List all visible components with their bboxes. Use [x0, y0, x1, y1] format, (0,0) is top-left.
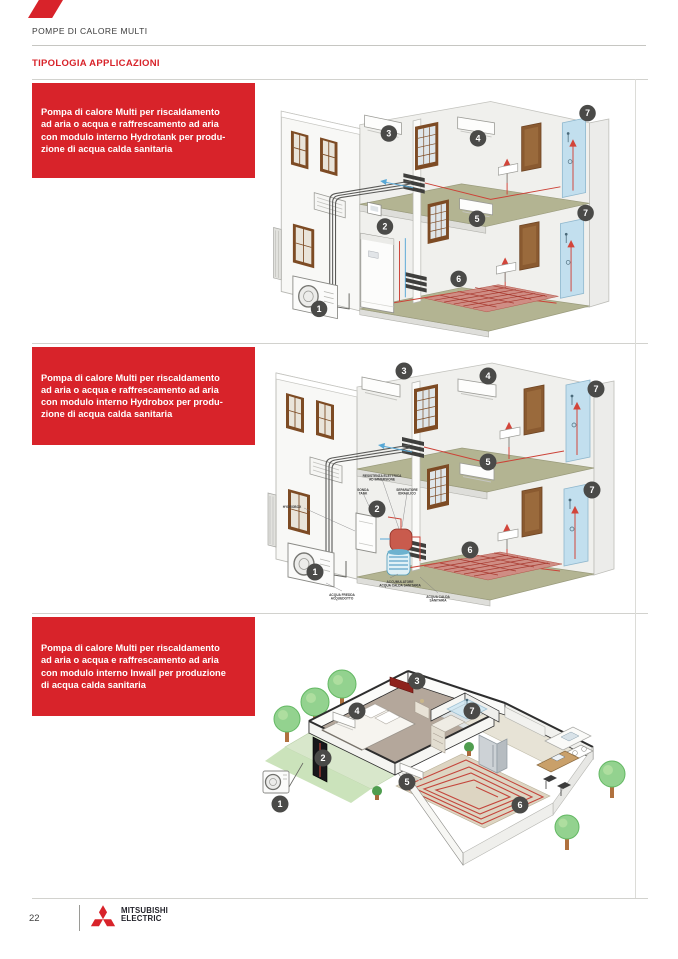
badge-number: 3 [386, 129, 391, 139]
mitsubishi-logo-icon [90, 905, 116, 927]
footer-rule [32, 898, 648, 899]
illustration-label: ACQUA FREDDAACQUEDOTTO [329, 593, 355, 601]
tree [555, 815, 579, 850]
house-illustration-hydrobox: 12345677 RESISTENZA ELETTRICAAD IMMERSIO… [262, 347, 632, 607]
badge-number: 1 [312, 567, 317, 577]
badge-number: 7 [589, 485, 594, 495]
section-title: TIPOLOGIA APPLICAZIONI [32, 58, 160, 69]
catalog-page: POMPE DI CALORE MULTI TIPOLOGIA APPLICAZ… [0, 0, 678, 959]
badge-number: 6 [456, 274, 461, 284]
section-divider [32, 79, 648, 80]
mitsubishi-diamond-mark [28, 0, 63, 18]
description-text: Pompa di calore Multi per riscaldamento … [41, 106, 225, 155]
house-illustration-inwall: 1234567 [255, 641, 650, 886]
hydrobox-unit [356, 513, 376, 553]
illustration-label: ACQUA CALDASANITARIA [426, 595, 450, 603]
badge-number: 3 [401, 366, 406, 376]
badge-number: 6 [467, 545, 472, 555]
badge-number: 7 [593, 384, 598, 394]
illustration-label: SEPARATOREIDRAULICO [396, 488, 418, 496]
badge-number: 7 [583, 208, 588, 218]
badge-number: 5 [475, 214, 480, 224]
section-divider [32, 343, 648, 344]
badge-number: 5 [404, 777, 409, 787]
page-number: 22 [29, 913, 40, 924]
badge-number: 7 [585, 108, 590, 118]
badge-number: 4 [485, 371, 490, 381]
illustration-label: HYDROBOX [283, 505, 302, 509]
description-box-inwall: Pompa di calore Multi per riscaldamento … [32, 617, 255, 716]
badge-number: 5 [485, 457, 490, 467]
description-box-hydrobox: Pompa di calore Multi per riscaldamento … [32, 347, 255, 445]
badge-number: 2 [320, 753, 325, 763]
badge-number: 2 [374, 504, 379, 514]
badge-number: 3 [414, 676, 419, 686]
section-divider [32, 613, 648, 614]
tree [599, 761, 625, 798]
description-text: Pompa di calore Multi per riscaldamento … [41, 642, 226, 691]
brand-name: MITSUBISHI ELECTRIC [121, 907, 168, 922]
badge-number: 4 [354, 706, 359, 716]
page-eyebrow: POMPE DI CALORE MULTI [32, 26, 148, 36]
header-rule [32, 45, 646, 46]
description-box-hydrotank: Pompa di calore Multi per riscaldamento … [32, 83, 255, 178]
brand-line2: ELECTRIC [121, 915, 168, 923]
badge-number: 6 [517, 800, 522, 810]
house-illustration-hydrotank: 12345677 [262, 86, 632, 338]
badge-number: 1 [277, 799, 282, 809]
badge-number: 1 [317, 304, 322, 314]
description-text: Pompa di calore Multi per riscaldamento … [41, 372, 223, 421]
badge-number: 2 [383, 222, 388, 232]
footer-divider [79, 905, 80, 931]
tree [274, 706, 300, 742]
accumulator-tank [387, 549, 410, 575]
badge-number: 4 [476, 133, 481, 143]
badge-number: 7 [469, 706, 474, 716]
